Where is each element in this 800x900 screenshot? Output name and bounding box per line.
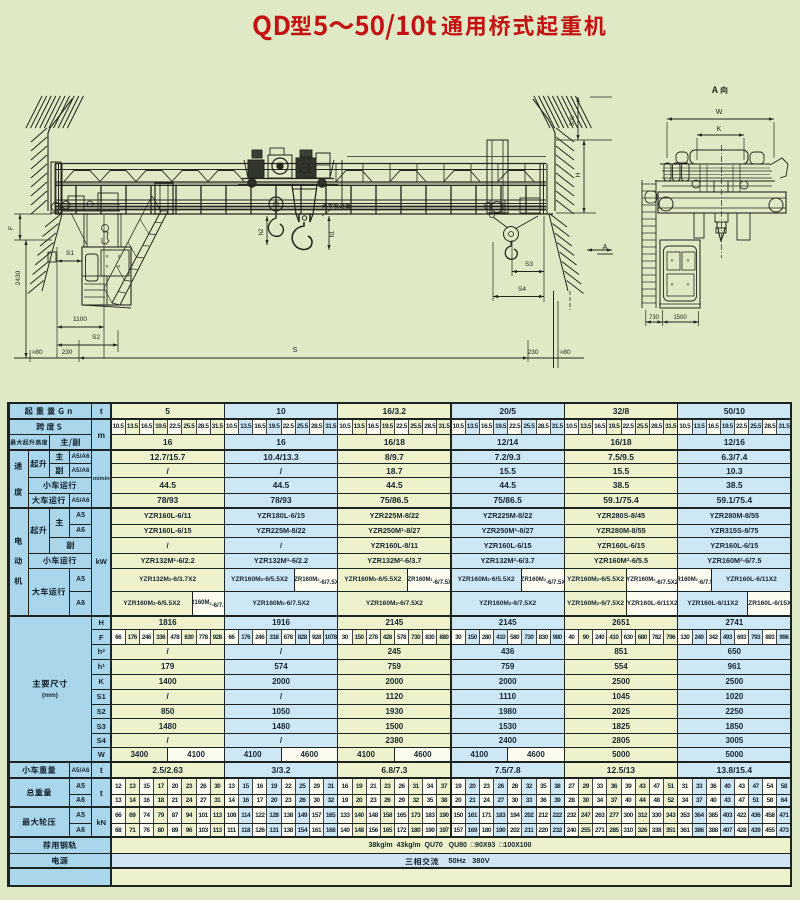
svg-text:#: # (671, 282, 674, 287)
svg-text:1100: 1100 (73, 316, 87, 323)
svg-text:230: 230 (62, 349, 73, 356)
svg-text:#: # (687, 258, 690, 263)
svg-text:W: W (716, 109, 723, 116)
svg-text:S2: S2 (92, 334, 100, 341)
svg-text:2430: 2430 (15, 270, 22, 285)
svg-text:>80: >80 (559, 349, 570, 356)
svg-text:>80: >80 (31, 349, 42, 356)
svg-text:300: 300 (570, 115, 576, 126)
svg-text:#: # (671, 258, 674, 263)
svg-text:S: S (293, 347, 298, 354)
svg-text:#: # (106, 254, 109, 259)
svg-text:#: # (118, 264, 121, 269)
svg-text:S4: S4 (518, 286, 526, 293)
svg-text:230: 230 (528, 349, 539, 356)
svg-text:h1: h1 (330, 230, 336, 237)
svg-text:K: K (717, 126, 722, 133)
svg-text:h2: h2 (259, 228, 265, 235)
svg-text:730: 730 (649, 315, 660, 321)
svg-text:#: # (106, 264, 109, 269)
svg-text:F: F (8, 226, 15, 230)
svg-text:S3: S3 (525, 261, 533, 268)
svg-text:S1: S1 (66, 250, 74, 257)
svg-text:H: H (575, 172, 582, 177)
svg-text:#: # (687, 282, 690, 287)
svg-text:1500: 1500 (673, 315, 687, 321)
